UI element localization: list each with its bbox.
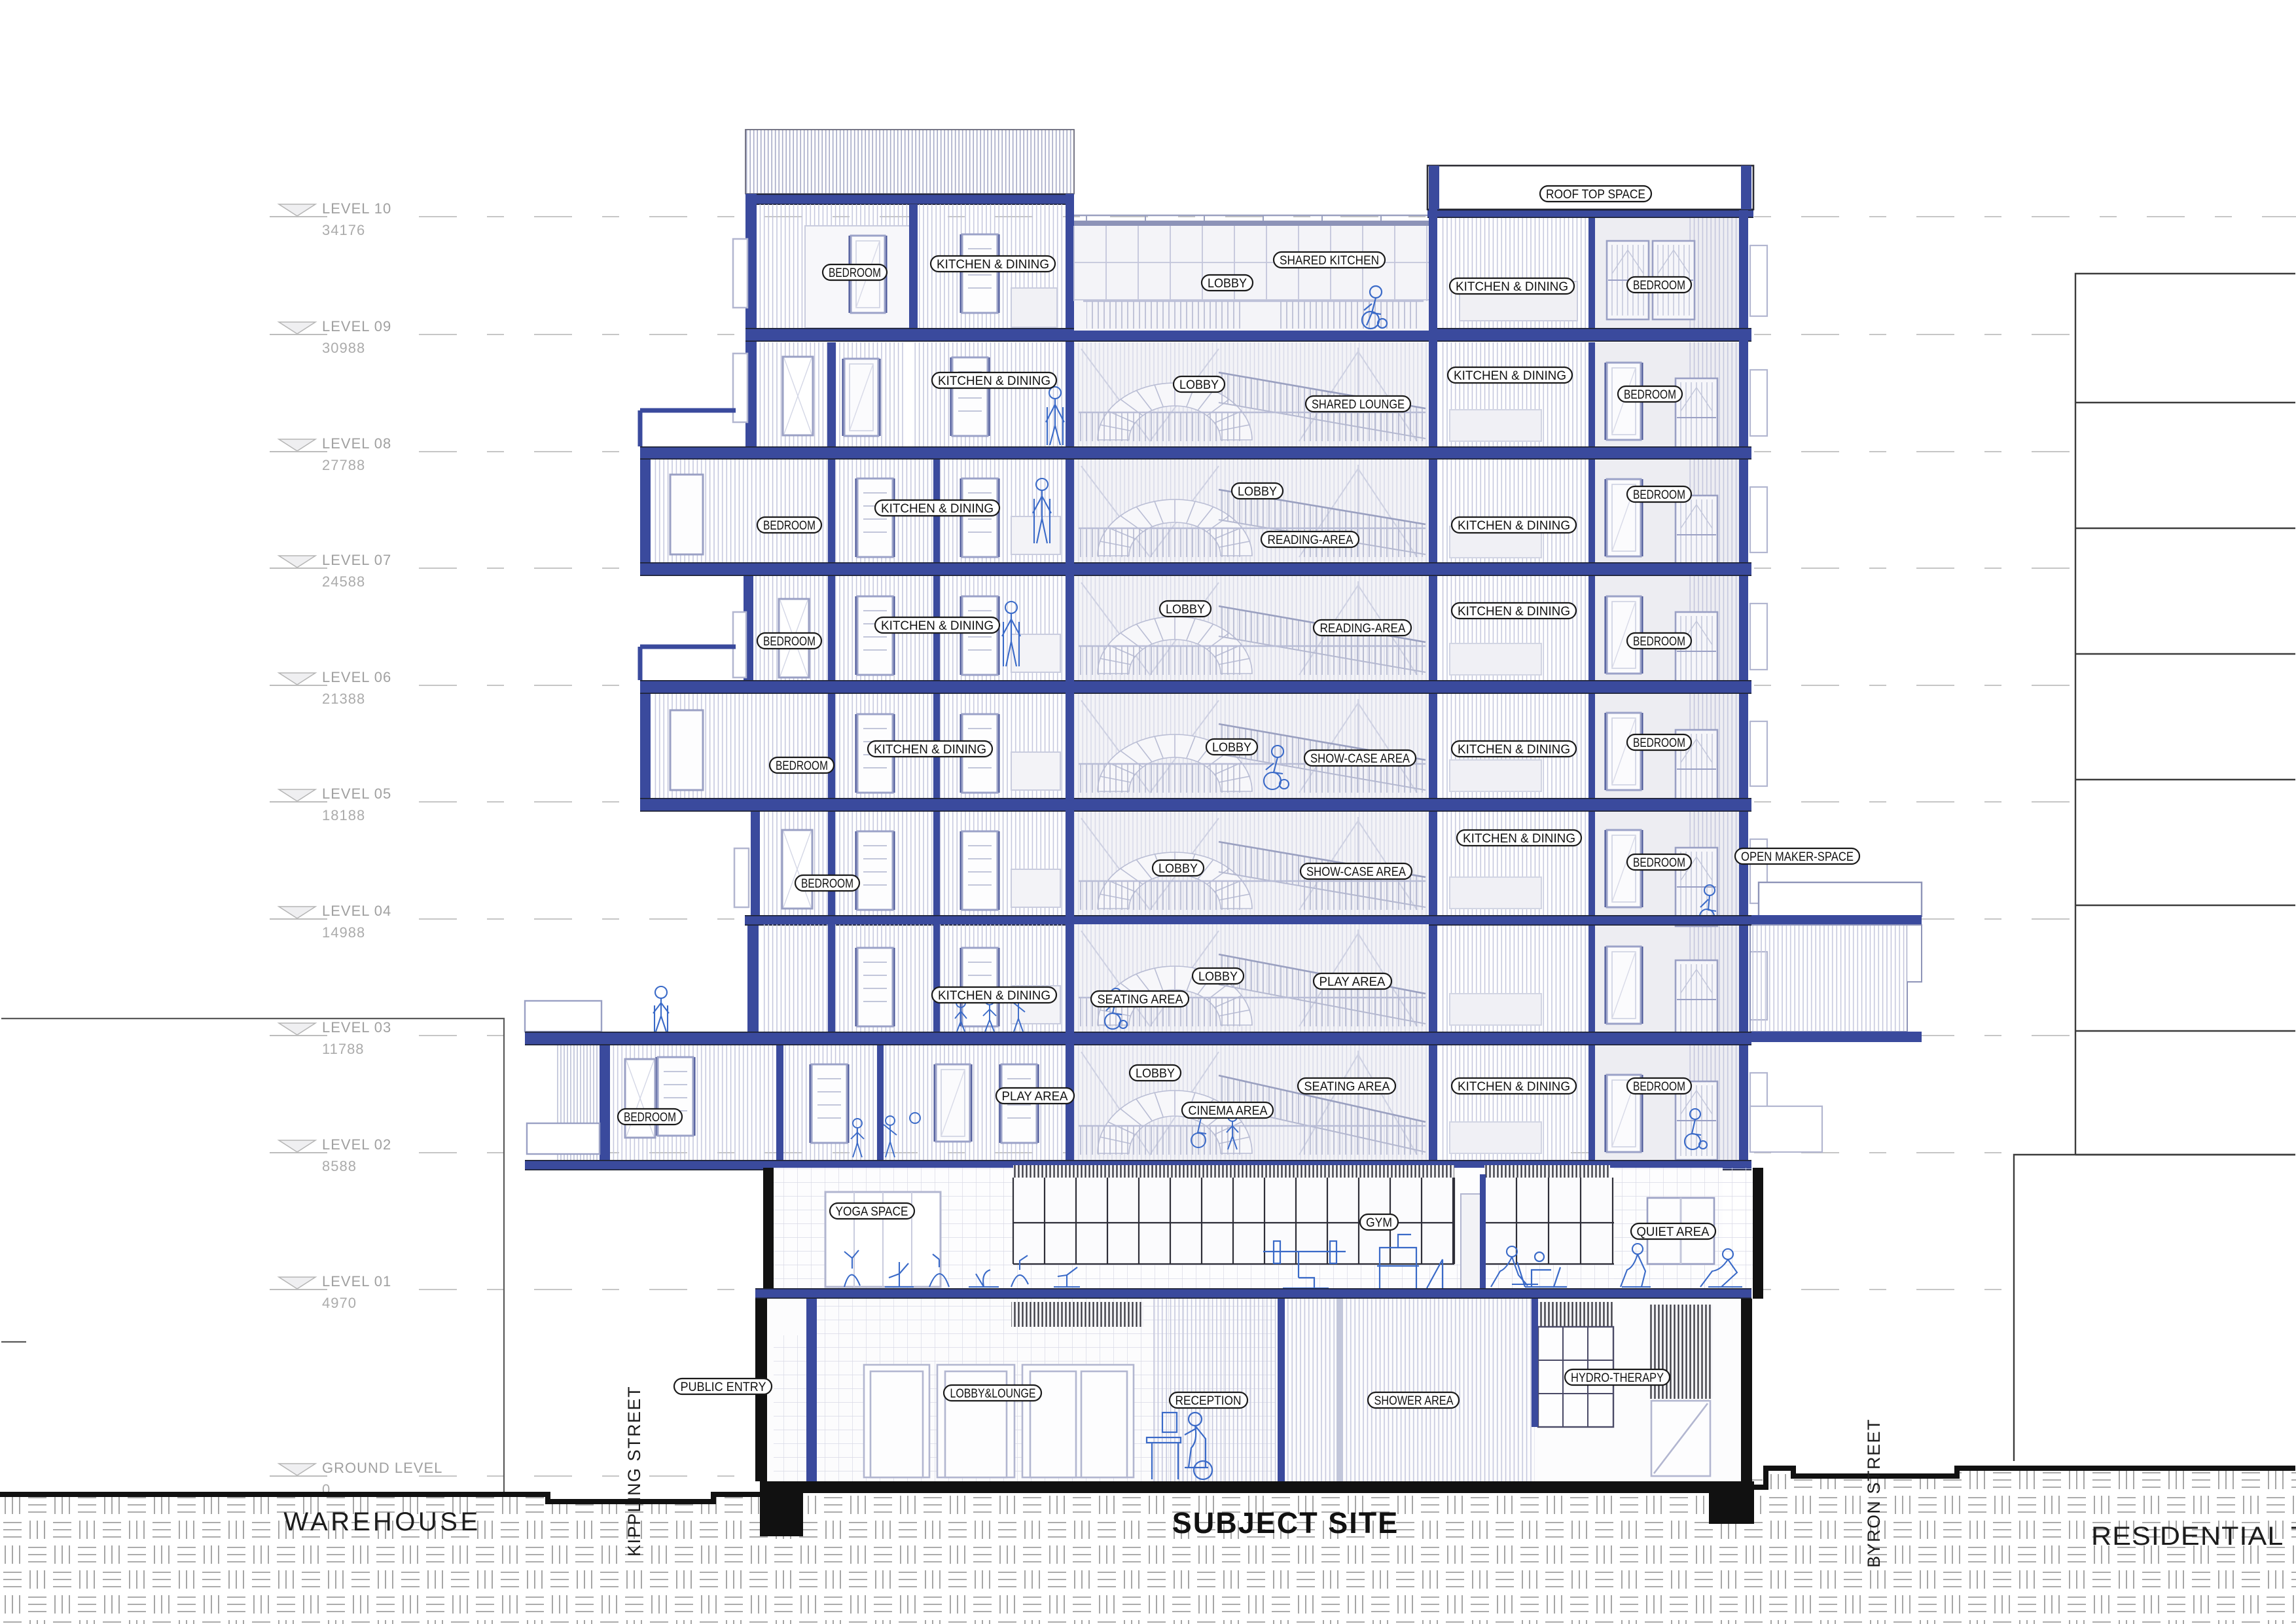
svg-text:KIPPLING STREET: KIPPLING STREET [624,1386,644,1557]
svg-text:KITCHEN & DINING: KITCHEN & DINING [881,502,994,516]
svg-text:BEDROOM: BEDROOM [1633,635,1685,649]
svg-text:KITCHEN & DINING: KITCHEN & DINING [1463,832,1575,846]
svg-text:GYM: GYM [1366,1216,1392,1230]
svg-text:LOBBY: LOBBY [1208,277,1247,291]
svg-text:LEVEL 04: LEVEL 04 [322,903,391,919]
svg-text:LOBBY: LOBBY [1238,485,1277,499]
svg-text:BEDROOM: BEDROOM [801,877,853,891]
svg-text:SHARED KITCHEN: SHARED KITCHEN [1280,254,1379,268]
svg-text:PLAY AREA: PLAY AREA [1319,975,1386,989]
svg-text:READING-AREA: READING-AREA [1320,622,1406,636]
svg-text:KITCHEN & DINING: KITCHEN & DINING [1454,369,1566,383]
svg-text:27788: 27788 [322,457,365,473]
svg-text:18188: 18188 [322,807,365,823]
svg-text:SEATING AREA: SEATING AREA [1304,1080,1390,1094]
svg-text:LEVEL 05: LEVEL 05 [322,785,391,802]
svg-text:BEDROOM: BEDROOM [829,266,881,280]
svg-text:LEVEL 03: LEVEL 03 [322,1019,391,1036]
svg-text:21388: 21388 [322,691,365,707]
svg-text:SHOW-CASE AREA: SHOW-CASE AREA [1306,865,1406,879]
svg-text:QUIET AREA: QUIET AREA [1637,1225,1710,1239]
svg-text:34176: 34176 [322,222,365,238]
svg-text:YOGA SPACE: YOGA SPACE [836,1205,908,1219]
svg-text:LEVEL 09: LEVEL 09 [322,318,391,334]
svg-text:BEDROOM: BEDROOM [1633,279,1685,293]
svg-text:BEDROOM: BEDROOM [1624,388,1676,402]
svg-text:LEVEL 07: LEVEL 07 [322,552,391,568]
svg-text:KITCHEN & DINING: KITCHEN & DINING [881,619,994,633]
svg-text:LOBBY: LOBBY [1198,970,1238,984]
svg-text:4970: 4970 [322,1295,357,1311]
svg-text:GROUND LEVEL: GROUND LEVEL [322,1460,442,1476]
svg-text:SHOW-CASE AREA: SHOW-CASE AREA [1310,752,1410,766]
svg-text:BEDROOM: BEDROOM [1633,856,1685,870]
svg-text:KITCHEN & DINING: KITCHEN & DINING [938,374,1050,388]
svg-text:BEDROOM: BEDROOM [1633,488,1685,502]
svg-text:LEVEL 08: LEVEL 08 [322,435,391,452]
svg-text:8588: 8588 [322,1158,357,1174]
svg-text:SEATING AREA: SEATING AREA [1098,993,1183,1007]
svg-text:SHARED LOUNGE: SHARED LOUNGE [1312,398,1405,412]
svg-text:KITCHEN & DINING: KITCHEN & DINING [1456,280,1568,294]
svg-text:BYRON STREET: BYRON STREET [1864,1418,1884,1568]
svg-text:HYDRO-THERAPY: HYDRO-THERAPY [1571,1371,1664,1385]
svg-text:BEDROOM: BEDROOM [776,759,828,773]
svg-text:CINEMA AREA: CINEMA AREA [1189,1104,1268,1118]
svg-text:LEVEL 01: LEVEL 01 [322,1273,391,1290]
svg-text:11788: 11788 [322,1041,365,1057]
svg-text:LOBBY: LOBBY [1166,603,1205,617]
svg-text:KITCHEN & DINING: KITCHEN & DINING [874,743,986,757]
svg-text:OPEN MAKER-SPACE: OPEN MAKER-SPACE [1741,850,1854,864]
svg-text:BEDROOM: BEDROOM [1633,1080,1685,1094]
svg-text:KITCHEN & DINING: KITCHEN & DINING [1458,743,1570,757]
svg-text:ROOF TOP SPACE: ROOF TOP SPACE [1546,188,1645,202]
svg-text:LOBBY: LOBBY [1136,1067,1175,1081]
svg-text:LEVEL 02: LEVEL 02 [322,1136,391,1153]
svg-text:READING-AREA: READING-AREA [1268,533,1354,547]
svg-text:SHOWER AREA: SHOWER AREA [1374,1394,1454,1408]
svg-text:KITCHEN & DINING: KITCHEN & DINING [938,989,1050,1003]
svg-text:LOBBY: LOBBY [1212,741,1251,755]
svg-text:PLAY AREA: PLAY AREA [1002,1090,1068,1104]
svg-text:14988: 14988 [322,924,365,941]
svg-text:RECEPTION: RECEPTION [1175,1394,1242,1408]
svg-text:LEVEL 06: LEVEL 06 [322,669,391,685]
svg-text:KITCHEN & DINING: KITCHEN & DINING [1458,519,1570,533]
svg-text:KITCHEN & DINING: KITCHEN & DINING [937,258,1049,272]
svg-text:LOBBY&LOUNGE: LOBBY&LOUNGE [950,1387,1036,1401]
svg-text:24588: 24588 [322,573,365,590]
svg-text:LEVEL 10: LEVEL 10 [322,200,391,217]
svg-text:LOBBY: LOBBY [1179,378,1219,392]
svg-text:BEDROOM: BEDROOM [1633,736,1685,750]
svg-text:KITCHEN & DINING: KITCHEN & DINING [1458,605,1570,619]
svg-text:LOBBY: LOBBY [1158,862,1198,876]
svg-text:30988: 30988 [322,340,365,356]
svg-text:BEDROOM: BEDROOM [624,1111,676,1125]
svg-text:RESIDENTIAL TOWER: RESIDENTIAL TOWER [2091,1522,2296,1551]
svg-text:SUBJECT SITE: SUBJECT SITE [1172,1506,1399,1540]
svg-text:BEDROOM: BEDROOM [763,635,816,649]
svg-text:WAREHOUSE: WAREHOUSE [283,1507,480,1536]
svg-text:BEDROOM: BEDROOM [763,519,816,533]
svg-text:PUBLIC ENTRY: PUBLIC ENTRY [681,1380,766,1394]
svg-text:KITCHEN & DINING: KITCHEN & DINING [1458,1080,1570,1094]
